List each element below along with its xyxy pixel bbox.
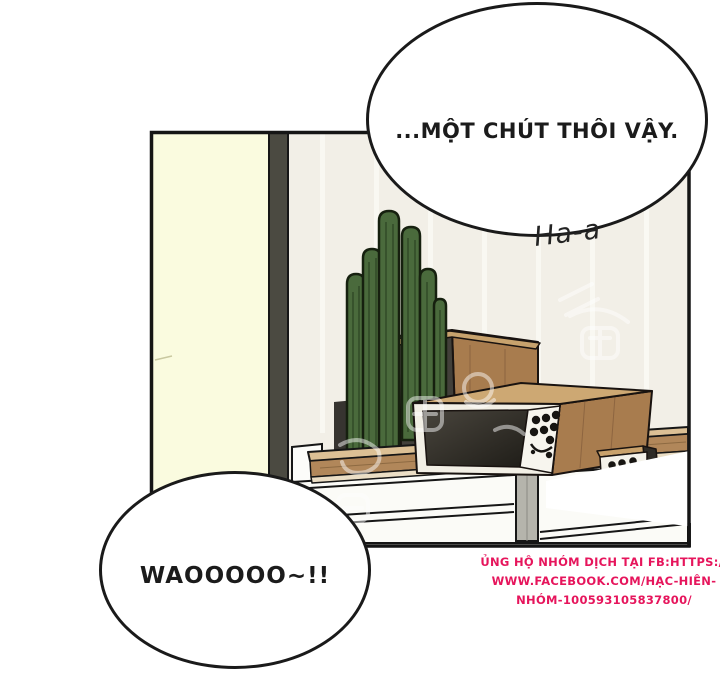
comic-page: ...MỘT CHÚT THÔI VẬY. Ha-a WAOOOOO~!! ỦN…	[0, 0, 720, 675]
credit-line-3: NHÓM-100593105837800/	[478, 591, 720, 610]
translator-credit: ỦNG HỘ NHÓM DỊCH TẠI FB:HTTPS:// WWW.FAC…	[478, 553, 720, 610]
credit-line-2: WWW.FACEBOOK.COM/HẠC-HIÊN-	[478, 572, 720, 591]
speech-text-top: ...MỘT CHÚT THÔI VẬY.	[395, 97, 679, 143]
credit-line-1: ỦNG HỘ NHÓM DỊCH TẠI FB:HTTPS://	[478, 553, 720, 572]
speech-bubble-top: ...MỘT CHÚT THÔI VẬY.	[366, 2, 708, 237]
speech-text-bottom: WAOOOOO~!!	[140, 551, 330, 589]
speech-bubble-bottom: WAOOOOO~!!	[99, 471, 371, 669]
stand-post	[516, 468, 538, 541]
